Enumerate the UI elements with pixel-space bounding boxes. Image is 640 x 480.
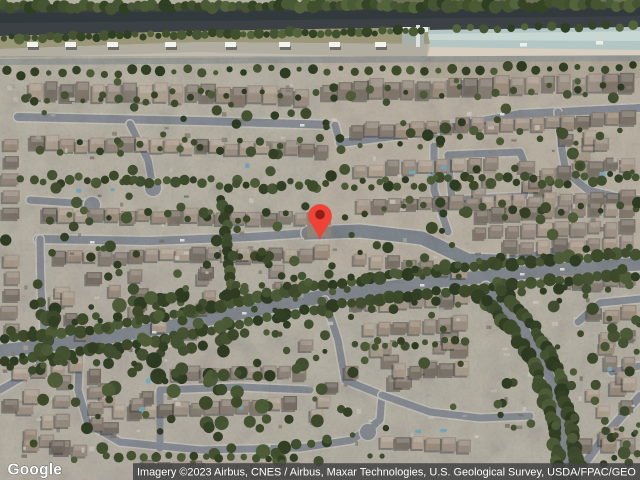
svg-text:Google: Google xyxy=(8,462,63,479)
svg-text:Imagery ©2023 Airbus, CNES / A: Imagery ©2023 Airbus, CNES / Airbus, Max… xyxy=(137,467,636,479)
